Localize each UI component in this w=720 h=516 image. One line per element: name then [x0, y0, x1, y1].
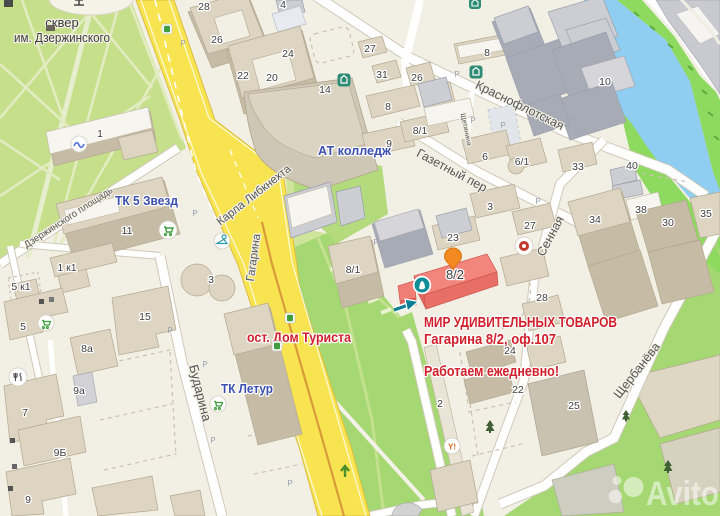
- svg-text:Р: Р: [535, 197, 540, 206]
- svg-text:35: 35: [700, 208, 712, 220]
- svg-text:Р: Р: [500, 121, 505, 130]
- svg-text:2: 2: [437, 398, 443, 410]
- svg-text:8/1: 8/1: [346, 264, 361, 276]
- svg-text:Р: Р: [542, 116, 547, 125]
- svg-text:9а: 9а: [73, 385, 85, 397]
- svg-text:ост. Дом Туриста: ост. Дом Туриста: [247, 330, 351, 345]
- svg-text:МИР УДИВИТЕЛЬНЫХ ТОВАРОВ: МИР УДИВИТЕЛЬНЫХ ТОВАРОВ: [424, 315, 617, 331]
- svg-text:им. Дзержинского: им. Дзержинского: [14, 30, 110, 45]
- svg-text:Гагарина 8/2, оф.107: Гагарина 8/2, оф.107: [424, 332, 556, 348]
- svg-text:9: 9: [25, 494, 31, 506]
- svg-text:20: 20: [266, 72, 278, 84]
- svg-text:38: 38: [635, 204, 647, 216]
- svg-text:1: 1: [97, 128, 103, 140]
- svg-text:АТ колледж: АТ колледж: [318, 143, 392, 158]
- svg-text:3: 3: [208, 274, 214, 286]
- svg-text:ТК 5 Звезд: ТК 5 Звезд: [115, 193, 179, 208]
- svg-text:15: 15: [139, 311, 151, 323]
- svg-text:14: 14: [319, 84, 331, 96]
- svg-text:Р: Р: [470, 116, 475, 125]
- svg-text:33: 33: [572, 161, 584, 173]
- svg-text:6: 6: [482, 151, 488, 163]
- svg-text:3: 3: [487, 201, 493, 213]
- svg-text:Р: Р: [167, 326, 172, 335]
- svg-text:8: 8: [385, 101, 391, 113]
- svg-text:Р: Р: [192, 209, 197, 218]
- svg-text:Y!: Y!: [448, 443, 456, 452]
- svg-text:10: 10: [599, 76, 611, 88]
- svg-text:8/1: 8/1: [413, 125, 428, 137]
- svg-text:9Б: 9Б: [54, 447, 67, 459]
- svg-text:8: 8: [484, 47, 490, 59]
- svg-text:7: 7: [22, 407, 28, 419]
- svg-text:1 к1: 1 к1: [57, 262, 76, 274]
- svg-text:28: 28: [536, 292, 548, 304]
- svg-text:31: 31: [376, 69, 388, 81]
- svg-text:27: 27: [524, 220, 536, 232]
- svg-text:Р: Р: [202, 360, 207, 369]
- svg-text:Р: Р: [180, 39, 185, 48]
- svg-text:40: 40: [626, 160, 638, 172]
- svg-text:26: 26: [411, 72, 423, 84]
- svg-text:22: 22: [237, 70, 249, 82]
- svg-text:5: 5: [20, 321, 26, 333]
- svg-text:Р: Р: [373, 238, 378, 247]
- svg-text:28: 28: [198, 1, 210, 13]
- svg-text:30: 30: [662, 217, 674, 229]
- svg-text:22: 22: [512, 384, 524, 396]
- svg-text:26: 26: [211, 34, 223, 46]
- svg-text:Р: Р: [454, 70, 459, 79]
- svg-text:Avito: Avito: [646, 475, 719, 513]
- svg-text:8/2: 8/2: [446, 267, 464, 282]
- svg-text:23: 23: [447, 232, 459, 244]
- svg-text:6/1: 6/1: [515, 156, 530, 168]
- svg-text:24: 24: [282, 48, 294, 60]
- svg-text:5 к1: 5 к1: [11, 281, 30, 293]
- svg-text:34: 34: [589, 214, 601, 226]
- svg-text:8а: 8а: [81, 343, 93, 355]
- svg-text:Р: Р: [210, 436, 215, 445]
- svg-text:ТК Летур: ТК Летур: [221, 381, 273, 396]
- svg-text:Работаем ежедневно!: Работаем ежедневно!: [424, 364, 559, 380]
- svg-text:11: 11: [122, 225, 133, 237]
- svg-text:27: 27: [364, 43, 376, 55]
- svg-text:25: 25: [568, 400, 580, 412]
- svg-text:4: 4: [280, 0, 286, 11]
- svg-text:Р: Р: [287, 479, 292, 488]
